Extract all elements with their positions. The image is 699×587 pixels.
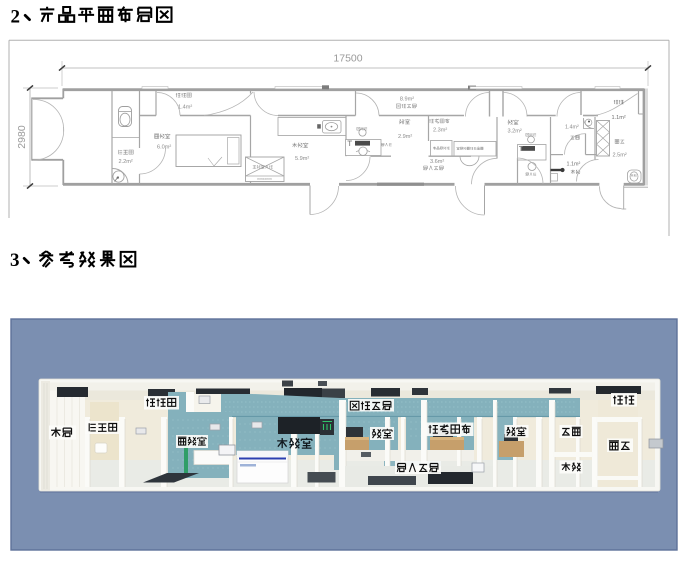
svg-text:5.9m²: 5.9m² xyxy=(295,156,309,162)
svg-text:3.6m²: 3.6m² xyxy=(430,159,444,165)
svg-text:2.9m²: 2.9m² xyxy=(398,134,412,140)
svg-text:mmxxmm: mmxxmm xyxy=(257,177,272,181)
svg-text:1.4m²: 1.4m² xyxy=(178,105,192,111)
svg-text:2: 2 xyxy=(11,7,21,28)
svg-text:3.2m²: 3.2m² xyxy=(508,129,522,135)
svg-text:2980: 2980 xyxy=(16,125,28,149)
svg-text:3: 3 xyxy=(10,250,20,271)
svg-text:1.4m²: 1.4m² xyxy=(565,125,579,131)
svg-text:8.9m²: 8.9m² xyxy=(400,97,414,103)
svg-text:6.0m²: 6.0m² xyxy=(157,145,171,151)
svg-text:2.3m²: 2.3m² xyxy=(433,128,447,134)
svg-text:2.2m²: 2.2m² xyxy=(119,159,133,165)
svg-text:17500: 17500 xyxy=(333,53,362,65)
svg-text:1.1m²: 1.1m² xyxy=(612,115,626,121)
svg-text:1.1m²: 1.1m² xyxy=(567,162,581,168)
svg-text:2.5m²: 2.5m² xyxy=(613,153,627,159)
